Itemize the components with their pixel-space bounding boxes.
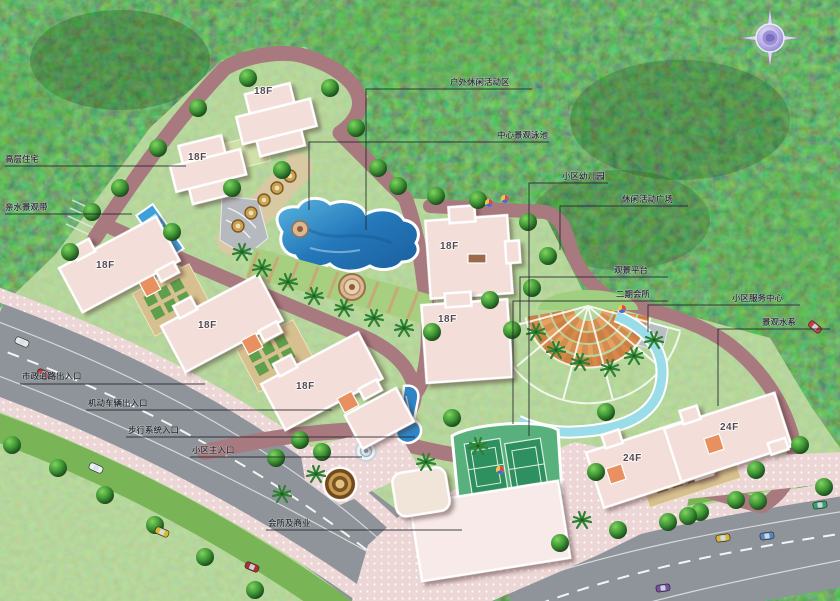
annotation-label: 高层住宅: [5, 154, 40, 164]
annotation-label: 中心景观泳池: [497, 130, 549, 140]
floor-label: 18F: [438, 314, 457, 325]
annotation-label: 小区幼儿园: [561, 171, 605, 181]
annotation-label: 户外休闲活动区: [449, 77, 510, 87]
floor-label: 18F: [198, 320, 217, 331]
floor-label: 18F: [296, 381, 315, 392]
floor-label: 18F: [440, 241, 459, 252]
annotation-label: 机动车辆出入口: [88, 398, 148, 408]
annotation-label: 小区服务中心: [731, 293, 784, 303]
annotation-label: 会所及商业: [267, 518, 311, 528]
site-plan-rendering: 18F 18F 18F 18F 18F 18F 18F 24F 24F 户外休闲…: [0, 0, 840, 601]
round-plaza: [339, 274, 365, 300]
site-plan-canvas: 18F 18F 18F 18F 18F 18F 18F 24F 24F 户外休闲…: [0, 0, 840, 601]
bullseye-plaza: [324, 468, 357, 501]
annotation-label: 市政道路出入口: [22, 371, 82, 381]
annotation-label: 小区主入口: [191, 445, 235, 455]
floor-label: 18F: [254, 86, 273, 97]
floor-label: 24F: [623, 453, 642, 464]
kindergarten-building: [391, 466, 451, 518]
annotation-label: 景观水系: [762, 317, 797, 327]
annotation-label: 二期会所: [616, 289, 651, 299]
floor-label: 24F: [720, 422, 739, 433]
small-round-plaza: [292, 221, 308, 237]
floor-label: 18F: [96, 260, 115, 271]
annotation-label: 亲水景观带: [5, 202, 48, 212]
annotation-label: 步行系统入口: [128, 425, 179, 435]
annotation-label: 休闲活动广场: [621, 194, 674, 204]
annotation-label: 观景平台: [614, 265, 649, 275]
floor-label: 18F: [188, 152, 207, 163]
